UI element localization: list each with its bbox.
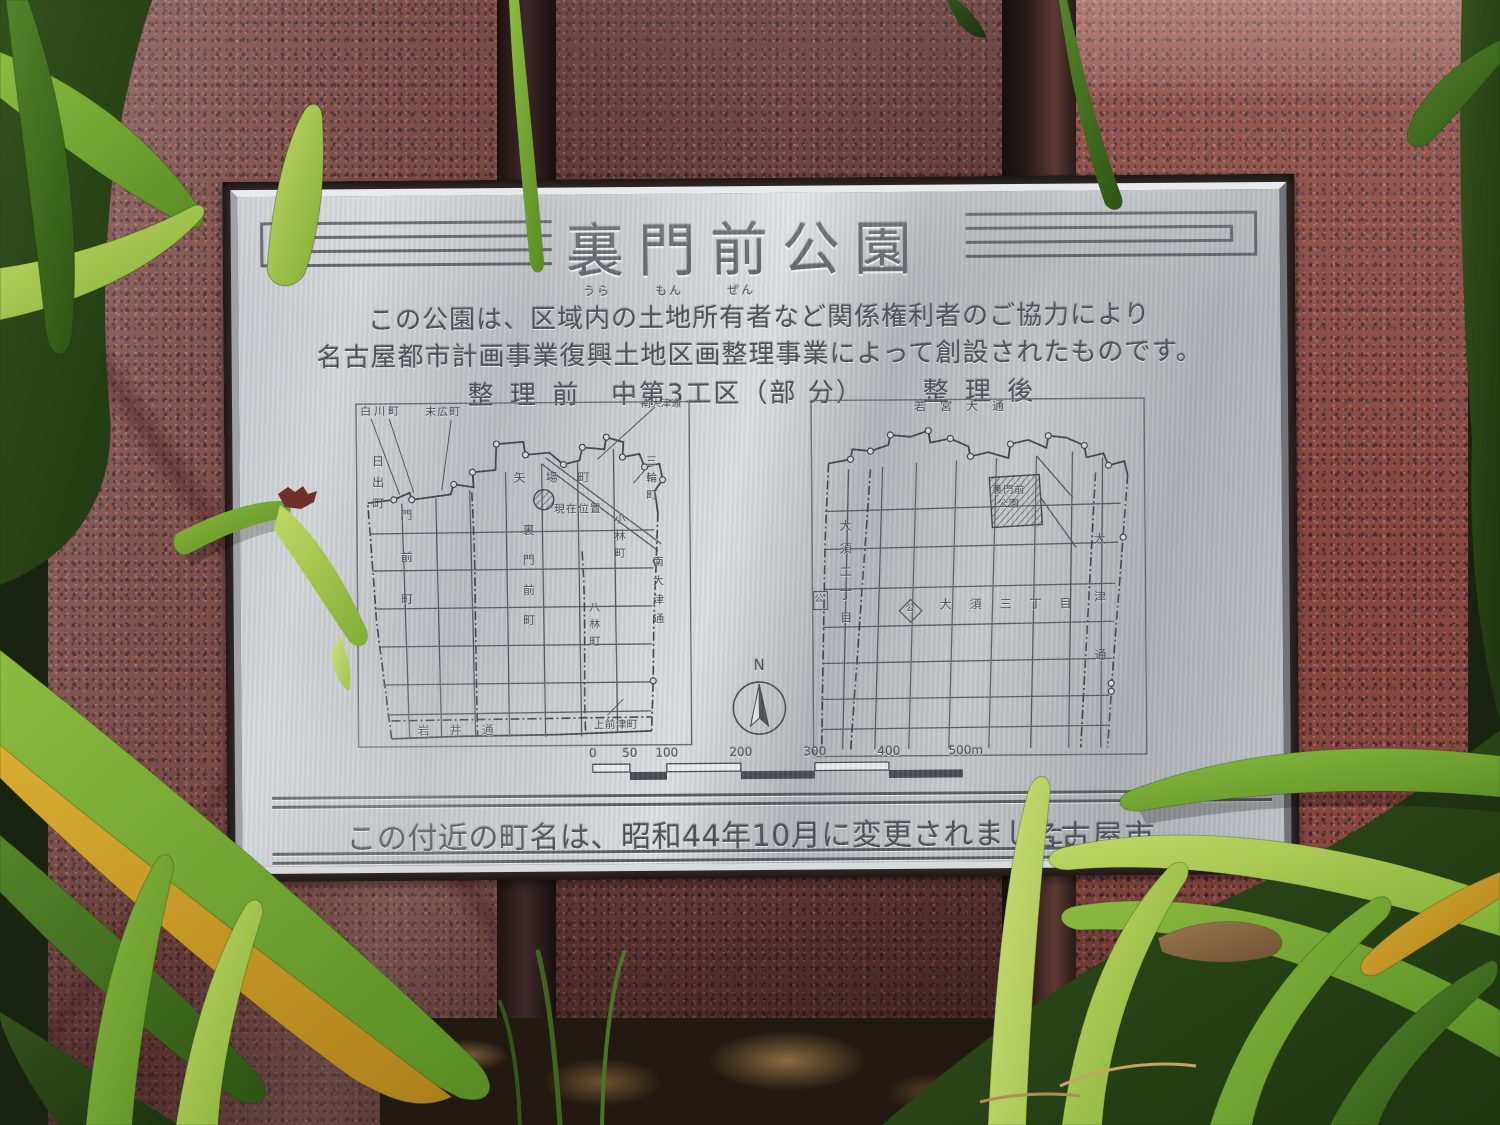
plaque-recess: 裏門前公園 うら もん ぜん この公園は、区域内の土地所有者など関係権利者のご協… (222, 174, 1299, 882)
scale-tick: 400 (877, 744, 900, 758)
map-label-monzen: 門前町 (400, 509, 413, 635)
compass-north-indicator: N (729, 655, 790, 747)
map-label-osu-3chome: 大須三丁目 (940, 597, 1090, 610)
map-before-readjustment: 白川町 末広町 南大津通 日出町 門前町 矢場町 現在位置 三輪町 小林町 裏門… (355, 401, 693, 749)
intro-line-2: 名古屋都市計画事業復興土地区画整理事業によって創設されたものです。 (238, 330, 1280, 375)
scale-bar-icon (578, 759, 978, 784)
title-furigana: うら (582, 282, 612, 299)
plaque-title-block: 裏門前公園 うら もん ぜん (535, 201, 956, 288)
map-label-hinode: 日出町 (371, 455, 383, 518)
map-label-minami-otsu-dori: 南大津通 (652, 556, 664, 632)
map-scale-bar: 0 50 100 200 300 400 500m (578, 743, 978, 788)
scale-tick: 50 (622, 746, 637, 760)
map-label-kobayashi: 小林町 (614, 513, 625, 564)
map-label-otsu-dori: 大津通 (1093, 532, 1106, 706)
map-after-readjustment: 若宮大通 裏門前公園 大須二丁目 大須三丁目 大津通 公 公 (810, 397, 1148, 758)
scale-tick: 500m (948, 743, 983, 757)
map-label-minami-otsu-dori-top: 南大津通 (641, 400, 681, 410)
scale-tick: 200 (729, 745, 752, 759)
title-furigana: ぜん (726, 281, 756, 298)
map-label-shirakawa: 白川町 (360, 406, 402, 417)
compass-icon (729, 674, 790, 738)
title-furigana: もん (654, 282, 684, 299)
header-ornament-right (964, 207, 1264, 261)
divider-line (272, 798, 1272, 809)
map-label-osu-2chome: 大須二丁目 (839, 519, 852, 634)
ground-dried-leaves (380, 1018, 1120, 1125)
scale-tick: 0 (589, 746, 597, 760)
map-label-iwai-dori: 岩井通 (418, 724, 514, 737)
page-title: 裏門前公園 (535, 201, 956, 288)
map-label-park-symbol: 公 (906, 605, 915, 614)
scale-tick: 100 (655, 746, 678, 760)
photo-scene: 裏門前公園 うら もん ぜん この公園は、区域内の土地所有者など関係権利者のご協… (0, 0, 1500, 1125)
map-label-kamimaezu: 上前津町 (593, 719, 637, 730)
map-label-miwa: 三輪町 (645, 455, 656, 506)
map-label-wakamiya-odori: 若宮大通 (914, 400, 1018, 413)
map-label-current-location: 現在位置 (554, 503, 602, 514)
map-label-hachibayashi: 八林町 (589, 601, 600, 652)
header-ornament-left (254, 217, 554, 271)
map-label-yaba: 矢場町 (514, 471, 610, 484)
current-location-marker (534, 490, 554, 510)
map-label-suehiro: 末広町 (425, 406, 461, 417)
map-label-uramonzen-cho: 裏門前町 (522, 524, 535, 644)
scale-tick: 300 (803, 744, 826, 758)
compass-n-label: N (753, 656, 764, 674)
map-label-uramonzen-park: 裏門前公園 (989, 484, 1029, 512)
map-label-park-symbol-left: 公 (815, 596, 824, 605)
metal-plaque: 裏門前公園 うら もん ぜん この公園は、区域内の土地所有者など関係権利者のご協… (230, 182, 1291, 874)
